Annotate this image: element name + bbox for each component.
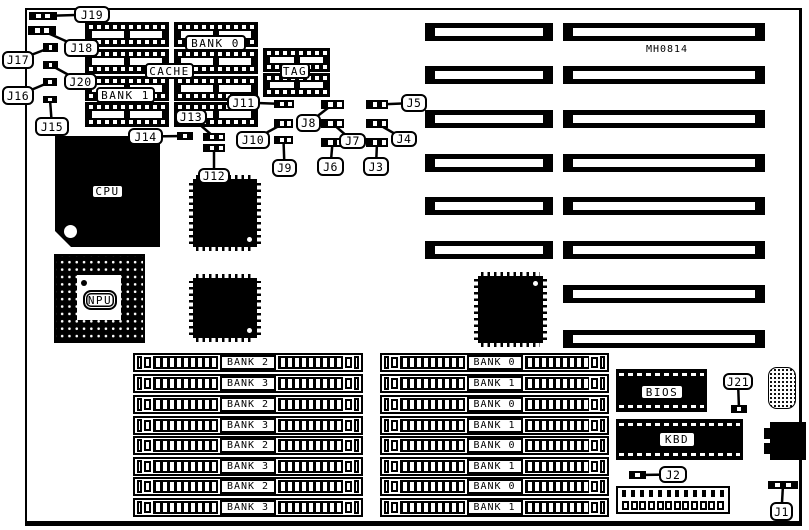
layer-callouts: J1J2J3J4J5J6J7J8J9J10J11J12J13J14J15J16J… <box>0 0 809 530</box>
callout-J4: J4 <box>391 131 417 147</box>
callout-J2: J2 <box>659 466 687 483</box>
callout-J11: J11 <box>227 94 260 111</box>
callout-J7: J7 <box>339 133 366 149</box>
callout-J14: J14 <box>128 128 163 145</box>
callout-J5: J5 <box>401 94 427 112</box>
callout-J13: J13 <box>175 109 207 125</box>
callout-J21: J21 <box>723 373 753 390</box>
callout-J3: J3 <box>363 157 389 176</box>
callout-J9: J9 <box>272 159 297 177</box>
callout-J1: J1 <box>770 502 793 521</box>
callout-J16: J16 <box>2 86 34 105</box>
callout-J20: J20 <box>64 73 97 90</box>
callout-J8: J8 <box>296 114 321 132</box>
part-number: MH0814 <box>630 44 704 58</box>
motherboard-diagram: BANK 0CACHEBANK 1TAGCPUNPUBANK 2BANK 3BA… <box>0 0 809 530</box>
callout-J12: J12 <box>198 168 230 184</box>
callout-J6: J6 <box>317 157 344 176</box>
callout-J15: J15 <box>35 117 69 136</box>
callout-J17: J17 <box>2 51 34 69</box>
callout-J19: J19 <box>74 6 110 23</box>
callout-J10: J10 <box>236 131 270 149</box>
callout-J18: J18 <box>64 39 99 57</box>
